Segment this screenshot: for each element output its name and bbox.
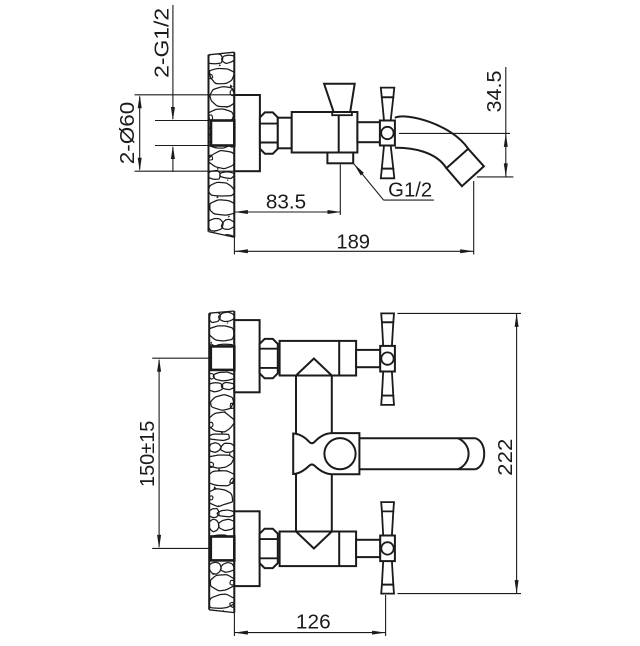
svg-text:126: 126 — [296, 612, 331, 634]
svg-text:2-G1/2: 2-G1/2 — [151, 8, 173, 78]
svg-text:83.5: 83.5 — [266, 191, 306, 213]
svg-text:G1/2: G1/2 — [388, 179, 432, 201]
svg-text:2-Ø60: 2-Ø60 — [117, 102, 139, 165]
svg-text:222: 222 — [495, 439, 517, 476]
svg-text:34.5: 34.5 — [484, 71, 506, 113]
svg-text:189: 189 — [336, 232, 370, 254]
svg-text:150±15: 150±15 — [137, 421, 159, 487]
